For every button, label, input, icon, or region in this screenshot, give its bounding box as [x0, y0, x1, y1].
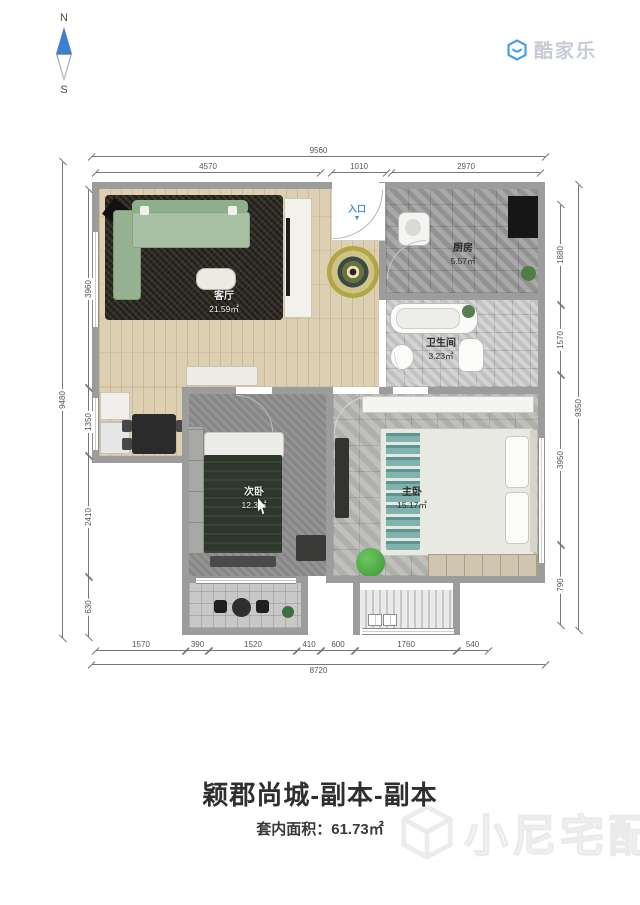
compass: N S [56, 12, 76, 107]
compass-needle-north-icon [56, 27, 72, 54]
balcony-chair [256, 600, 269, 613]
dim-left-total: 9480 [62, 162, 63, 638]
dim-bottom: 1520 [209, 650, 297, 651]
dim-top: 1010 [332, 172, 386, 173]
plan-title: 颖郡尚城-副本-副本 [0, 775, 640, 812]
master-headboard [530, 430, 537, 552]
kujiale-shield-icon [506, 39, 528, 61]
dim-left: 630 [88, 577, 89, 637]
balcony-chair [214, 600, 227, 613]
sofa-seat [132, 212, 250, 248]
kitchen-sink-basin [405, 219, 421, 236]
dim-right: 1880 [560, 205, 561, 305]
dim-right: 3950 [560, 375, 561, 545]
dim-bottom: 1570 [96, 650, 186, 651]
wall [379, 293, 545, 300]
dim-bottom: 1760 [355, 650, 457, 651]
kujiale-logo-text: 酷家乐 [534, 36, 597, 63]
hall-console [186, 366, 258, 386]
window [538, 438, 545, 563]
toilet [458, 338, 484, 372]
balcony-plant [282, 606, 294, 618]
dim-bottom: 600 [321, 650, 355, 651]
dim-bottom: 390 [186, 650, 209, 651]
wall [353, 583, 360, 635]
beanbag-chair [356, 548, 385, 577]
plan-area-label: 套内面积： [256, 821, 331, 838]
wall [453, 583, 460, 635]
master-pillow [505, 436, 529, 488]
room-label-master: 主卧 15.17㎡ [397, 487, 427, 510]
round-rug [327, 246, 379, 298]
wardrobe-bed2 [187, 426, 204, 554]
tv-screen [286, 218, 290, 296]
compass-north-label: N [56, 12, 72, 24]
dining-table [132, 414, 176, 454]
wall [182, 388, 189, 635]
kujiale-logo: 酷家乐 [506, 36, 597, 63]
sideboard [100, 392, 130, 420]
plan-area-total: 套内面积：61.73㎡ [0, 818, 640, 839]
bath-plant [462, 305, 475, 318]
compass-south-label: S [56, 84, 72, 96]
wall [379, 387, 393, 394]
wall [272, 387, 333, 394]
dim-left: 1350 [88, 388, 89, 456]
wall [385, 182, 545, 189]
bed2-desk [296, 535, 326, 561]
wall [182, 628, 308, 635]
dim-left: 2410 [88, 456, 89, 577]
wall [182, 387, 236, 394]
entry-arrow-icon: ▼ [341, 215, 373, 223]
entry-label: 入口 ▼ [341, 205, 373, 223]
wall [326, 388, 333, 583]
dim-bottom: 410 [297, 650, 321, 651]
bed2-bench [210, 556, 276, 567]
dim-right-total: 9350 [578, 185, 579, 630]
window-symbol [368, 614, 382, 626]
dining-chair [122, 438, 132, 450]
window [92, 398, 99, 450]
dim-left: 3960 [88, 190, 89, 388]
window [92, 232, 99, 327]
master-wardrobe [428, 554, 538, 578]
balcony-table [232, 598, 251, 617]
window [362, 628, 454, 635]
sofa-pillow [228, 206, 237, 215]
wall [428, 387, 545, 394]
dim-right: 790 [560, 545, 561, 625]
wall [92, 182, 332, 189]
room-label-living: 客厅 21.59㎡ [209, 291, 239, 314]
wall [326, 576, 545, 583]
master-pillow [505, 492, 529, 544]
wall [301, 576, 308, 635]
floorplan-page: N S 酷家乐 [0, 0, 640, 905]
bay-window-seat [362, 396, 534, 413]
dim-top: 2970 [392, 172, 540, 173]
dim-top-total: 9560 [92, 156, 545, 157]
room-label-kitchen: 厨房 5.57㎡ [450, 243, 475, 266]
dim-top: 4570 [96, 172, 320, 173]
coffee-table [196, 268, 236, 290]
plan-area-value: 61.73㎡ [331, 821, 384, 838]
master-dresser [335, 438, 349, 518]
window [196, 577, 296, 584]
dim-right: 1570 [560, 305, 561, 375]
compass-needle-south-icon [56, 54, 72, 81]
dining-chair [122, 420, 132, 432]
bathtub-inner [396, 308, 460, 329]
dim-bottom: 540 [457, 650, 488, 651]
kitchen-plant [521, 266, 536, 281]
wall [92, 456, 188, 463]
window-symbol [383, 614, 397, 626]
dim-bottom-total: 8720 [92, 664, 545, 665]
room-label-bathroom: 卫生间 3.23㎡ [426, 338, 456, 361]
sofa-pillow [140, 206, 149, 215]
